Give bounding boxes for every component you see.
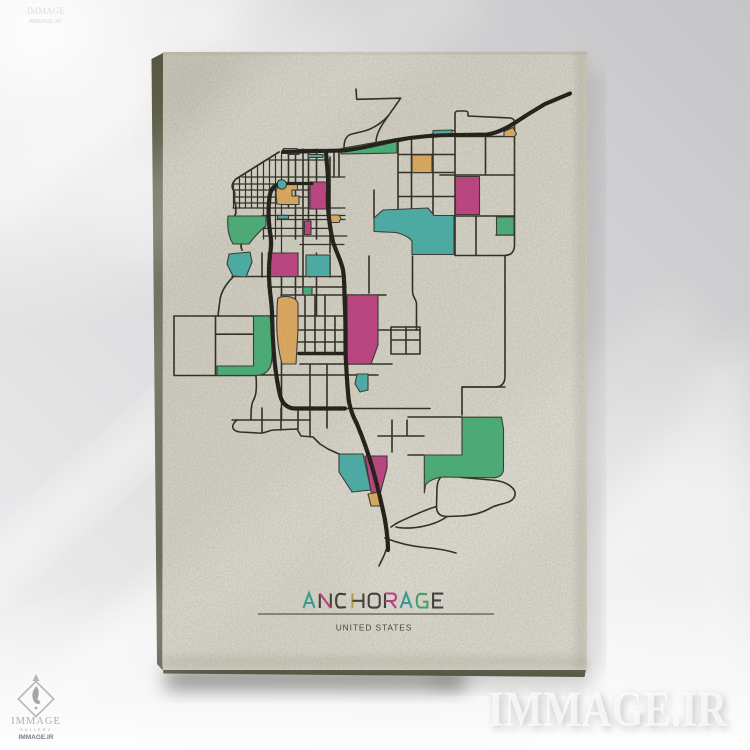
svg-text:IMMAGE: IMMAGE — [11, 716, 61, 727]
svg-text:IMMAGE.IR: IMMAGE.IR — [29, 19, 62, 25]
svg-text:IMMAGE: IMMAGE — [27, 6, 65, 16]
svg-text:IMMAGE.IR: IMMAGE.IR — [18, 734, 53, 741]
svg-text:GALLERY: GALLERY — [20, 727, 52, 732]
svg-text:IMMAGE.IR: IMMAGE.IR — [488, 682, 728, 738]
